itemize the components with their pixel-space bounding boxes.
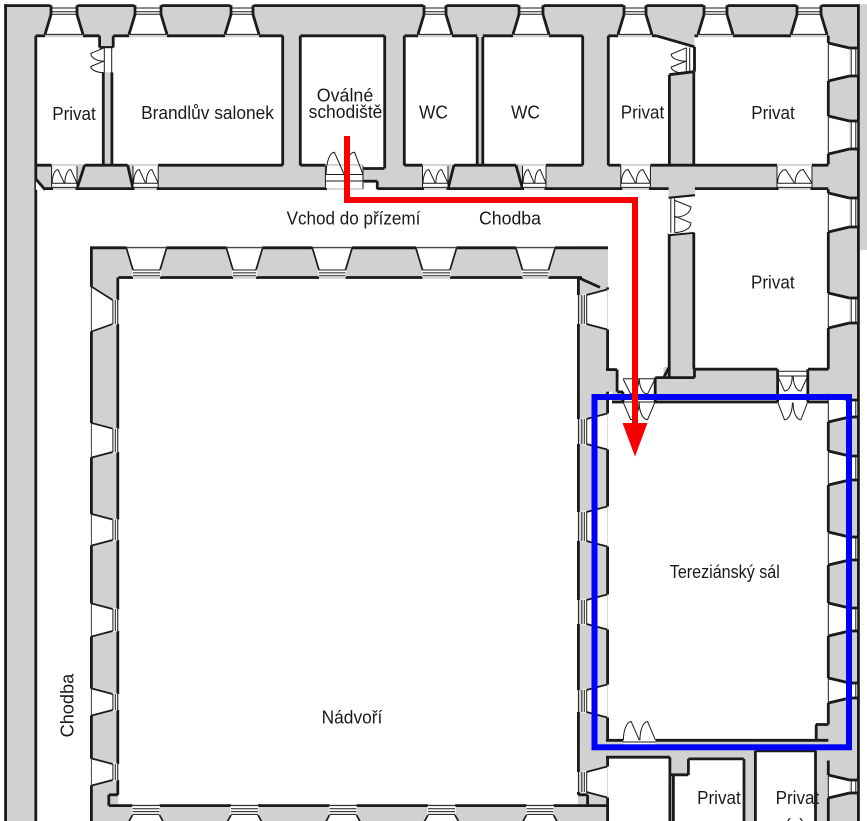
svg-text:Chodba: Chodba <box>479 209 542 229</box>
svg-text:Privat: Privat <box>52 104 96 124</box>
svg-text:Brandlův salonek: Brandlův salonek <box>141 103 275 123</box>
svg-text:Nádvoří: Nádvoří <box>322 708 383 728</box>
svg-text:WC: WC <box>419 103 448 123</box>
svg-text:Privat: Privat <box>776 788 820 808</box>
svg-text:Privat: Privat <box>751 103 795 123</box>
svg-text:(s): (s) <box>785 815 805 821</box>
svg-text:WC: WC <box>511 103 540 123</box>
svg-text:Tereziánský sál: Tereziánský sál <box>670 562 780 582</box>
svg-text:Chodba: Chodba <box>57 673 77 738</box>
svg-text:schodiště: schodiště <box>309 102 383 122</box>
svg-text:Privat: Privat <box>621 103 665 123</box>
svg-text:Privat: Privat <box>697 788 741 808</box>
svg-text:Vchod do přízemí: Vchod do přízemí <box>287 209 421 229</box>
svg-text:Privat: Privat <box>751 272 795 292</box>
